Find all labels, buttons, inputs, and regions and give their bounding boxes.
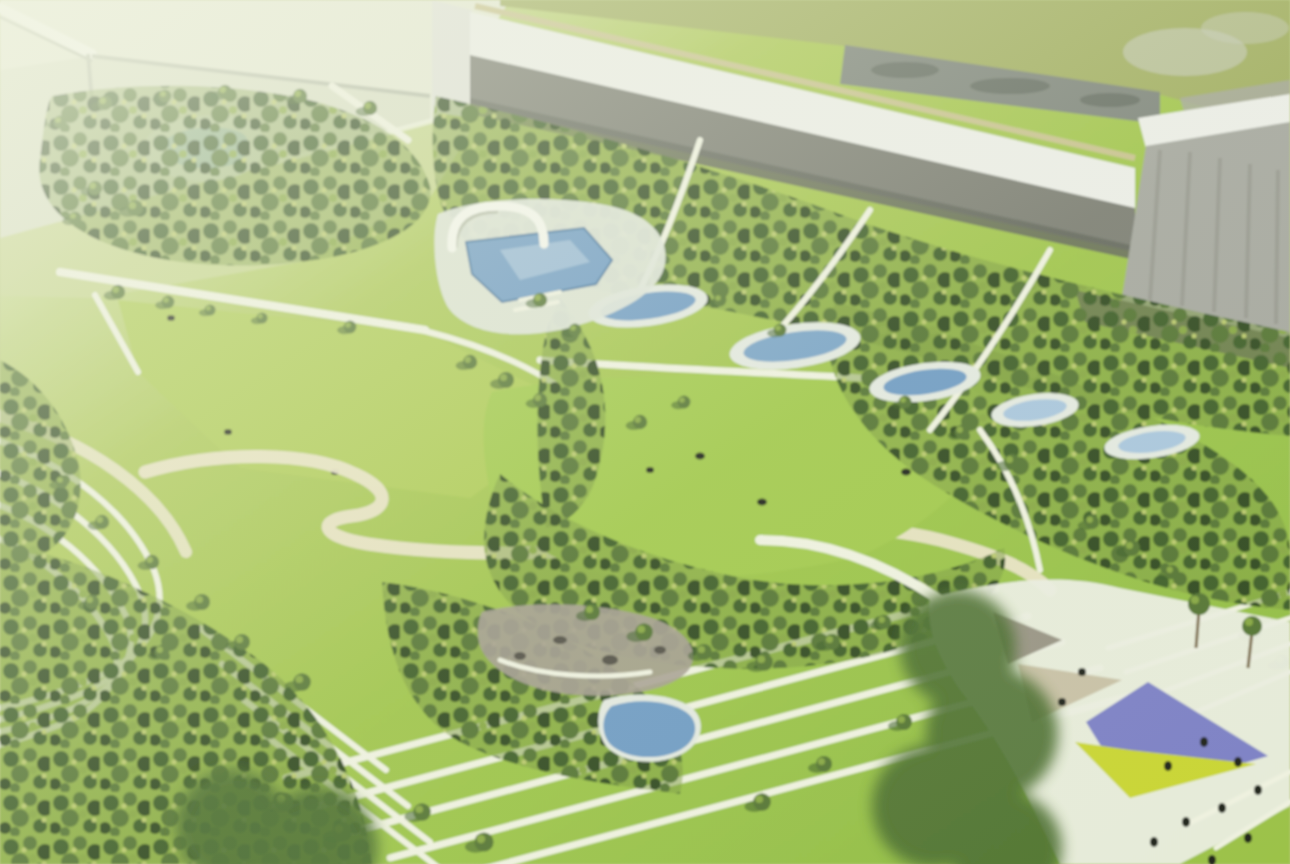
park-aerial-rendering: Aerial rendering of a landscaped park be… bbox=[0, 0, 1290, 864]
park-rendering-canvas: Aerial rendering of a landscaped park be… bbox=[0, 0, 1290, 864]
pale-wash-overlay bbox=[0, 0, 1290, 864]
